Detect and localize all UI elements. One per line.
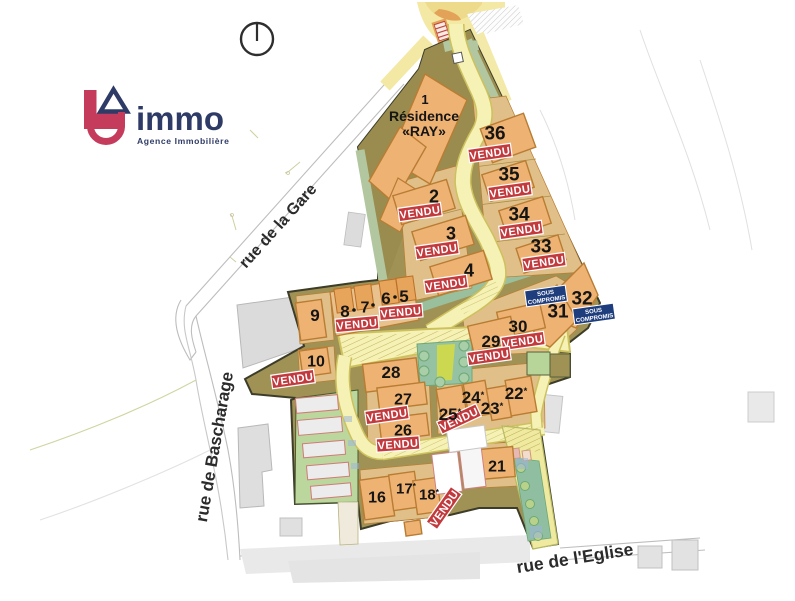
svg-text:30: 30 [509,317,528,336]
svg-text:34: 34 [508,205,530,226]
svg-text:6: 6 [381,289,390,308]
svg-text:7: 7 [361,300,370,317]
svg-text:16: 16 [368,490,386,507]
svg-text:32: 32 [571,289,592,310]
svg-text:10: 10 [307,354,325,371]
svg-text:27: 27 [394,392,412,409]
svg-text:1: 1 [421,92,428,107]
svg-text:Résidence: Résidence [389,108,459,124]
svg-text:«RAY»: «RAY» [402,123,446,139]
svg-text:2: 2 [429,186,439,206]
svg-text:4: 4 [464,260,474,280]
svg-text:36: 36 [484,124,505,145]
svg-text:9: 9 [310,306,319,325]
svg-text:29: 29 [482,332,501,351]
svg-text:35: 35 [498,165,520,186]
svg-text:28: 28 [382,363,401,382]
svg-text:33: 33 [530,237,551,258]
svg-text:26: 26 [394,423,412,440]
svg-text:3: 3 [446,223,456,243]
svg-text:31: 31 [547,302,569,323]
svg-text:5: 5 [399,287,408,306]
svg-text:8: 8 [340,302,349,321]
svg-text:Agence Immobilière: Agence Immobilière [137,136,229,146]
svg-text:21: 21 [488,459,506,476]
svg-text:immo: immo [136,100,224,137]
